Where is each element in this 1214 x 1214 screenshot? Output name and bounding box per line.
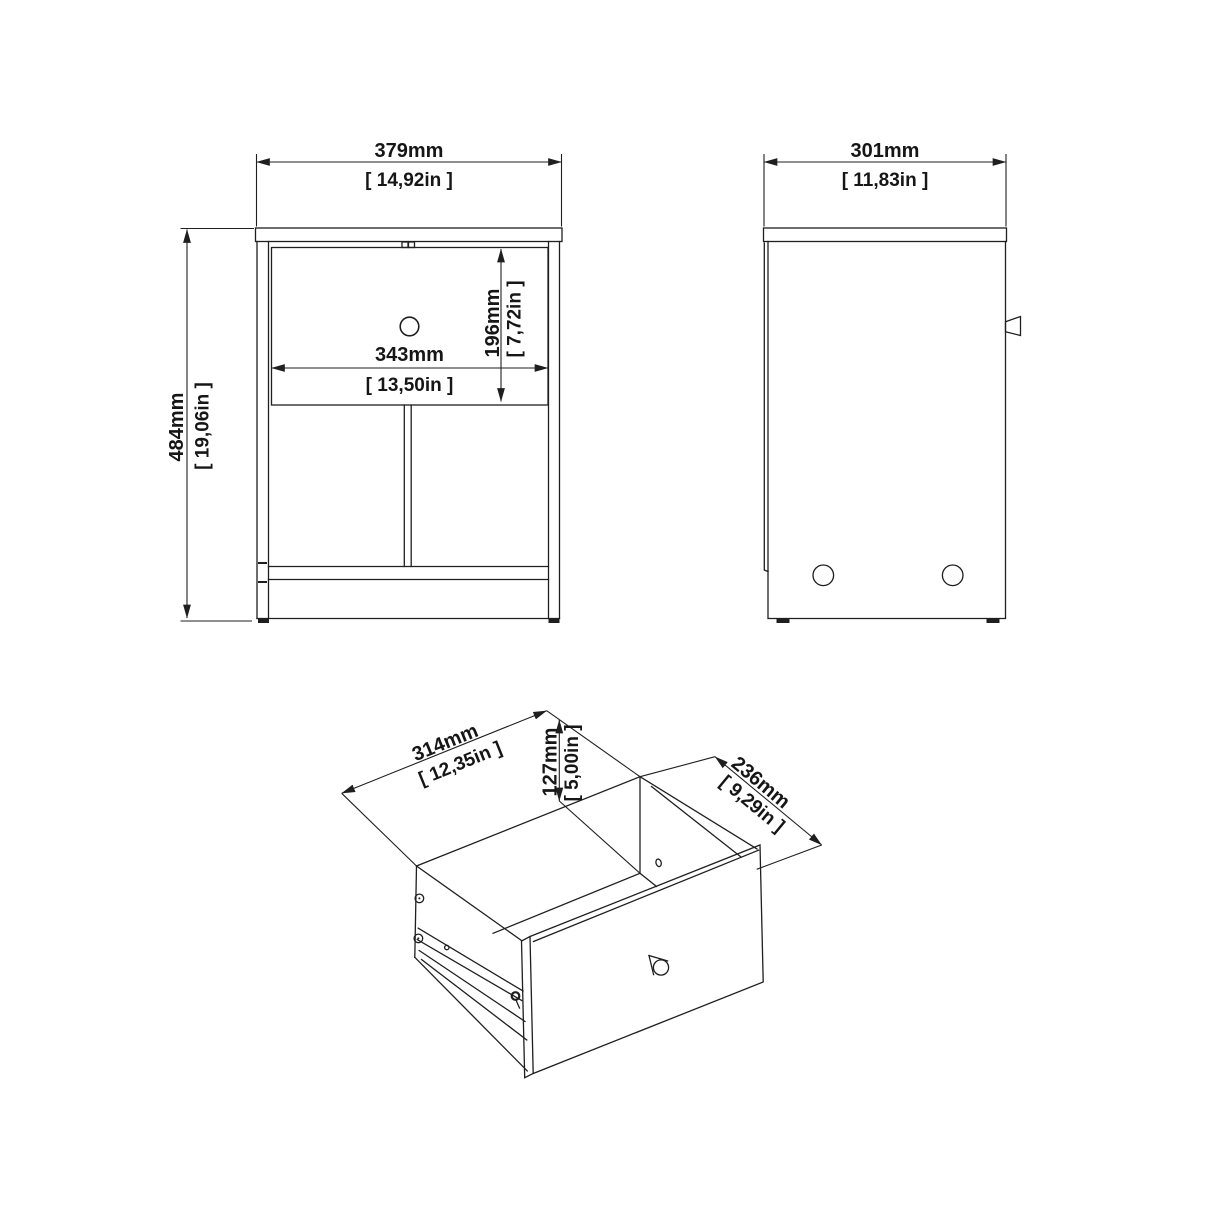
front-width-mm-label: 379mm bbox=[375, 140, 444, 162]
top-panel bbox=[764, 228, 1007, 242]
drawer-knob-icon bbox=[400, 317, 419, 336]
dowel-detail bbox=[402, 242, 408, 248]
drawer-box bbox=[417, 777, 758, 941]
front-view: 379mm [ 14,92in ] 484mm [ 19,06in ] bbox=[166, 140, 562, 623]
side-depth-dimension: 301mm [ 11,83in ] bbox=[764, 140, 1006, 227]
extension-line bbox=[342, 793, 417, 866]
screw-center bbox=[418, 897, 420, 899]
cam-lock-hole bbox=[942, 565, 963, 586]
screw-tip bbox=[516, 1000, 520, 1008]
front-height-mm-label: 484mm bbox=[166, 393, 188, 462]
knob-cone-edge bbox=[649, 956, 654, 975]
rail-line bbox=[417, 940, 522, 1001]
drawer-width-mm-label: 343mm bbox=[375, 344, 444, 366]
front-width-dimension: 379mm [ 14,92in ] bbox=[257, 140, 562, 227]
top-panel bbox=[256, 228, 563, 242]
dowel-detail bbox=[409, 242, 415, 248]
drawer-height-mm-label: 196mm bbox=[482, 289, 504, 358]
back-foot bbox=[987, 619, 1000, 624]
side-body-outline bbox=[768, 242, 1006, 619]
technical-drawing-page: 379mm [ 14,92in ] 484mm [ 19,06in ] bbox=[0, 0, 1214, 1214]
interior-bottom-back-edge bbox=[493, 873, 640, 933]
nightstand-technical-drawing: 379mm [ 14,92in ] 484mm [ 19,06in ] bbox=[0, 0, 1214, 1214]
iso-height-mm-label: 127mm bbox=[540, 728, 562, 797]
iso-width-dimension: 314mm [ 12,35in ] bbox=[342, 711, 640, 866]
cam-lock-hole bbox=[813, 565, 834, 586]
drawer-height-dimension: 196mm [ 7,72in ] bbox=[482, 249, 526, 402]
drawer-height-in-label: [ 7,72in ] bbox=[505, 280, 526, 357]
side-depth-mm-label: 301mm bbox=[851, 140, 920, 162]
front-height-dimension: 484mm [ 19,06in ] bbox=[166, 229, 254, 622]
drawer-isometric-view: 314mm [ 12,35in ] 127mm [ 5,00in ] 236mm… bbox=[342, 711, 822, 1078]
extension-line bbox=[640, 757, 715, 777]
iso-height-in-label: [ 5,00in ] bbox=[562, 724, 583, 801]
extension-line bbox=[757, 845, 822, 869]
left-panel-back-edge bbox=[415, 866, 417, 957]
side-view: 301mm [ 11,83in ] bbox=[764, 140, 1021, 623]
screw-center bbox=[417, 937, 419, 939]
front-foot bbox=[777, 619, 790, 624]
drawer-knob-icon bbox=[653, 960, 668, 975]
front-width-in-label: [ 14,92in ] bbox=[365, 170, 453, 191]
back-panel-top-edge bbox=[417, 777, 641, 866]
drawer-left-side-rail bbox=[414, 866, 527, 1071]
left-panel-top-edge bbox=[417, 866, 522, 941]
iso-depth-dimension: 236mm [ 9,29in ] bbox=[640, 752, 822, 869]
extension-line bbox=[559, 801, 640, 873]
drawer-front-panel-iso bbox=[522, 845, 764, 1078]
right-foot bbox=[549, 619, 560, 624]
drawer-width-in-label: [ 13,50in ] bbox=[366, 375, 454, 396]
left-foot bbox=[258, 619, 269, 624]
interior-bottom-right-edge bbox=[640, 873, 657, 886]
front-panel-top-inner-edge bbox=[534, 850, 759, 941]
rail-line bbox=[422, 960, 527, 1041]
screw-hole bbox=[655, 858, 662, 867]
drawer-knob-side-icon bbox=[1006, 317, 1021, 336]
side-depth-in-label: [ 11,83in ] bbox=[842, 170, 929, 191]
rail-bottom-edge bbox=[415, 957, 528, 1071]
front-height-in-label: [ 19,06in ] bbox=[193, 382, 214, 470]
side-cabinet-outline bbox=[764, 228, 1021, 623]
